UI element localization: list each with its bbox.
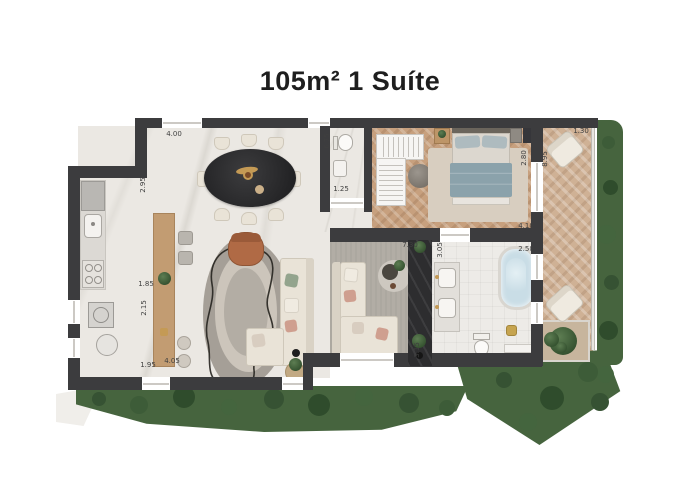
dimension-label: 1.95 bbox=[140, 361, 156, 369]
floor-plan-image: 105m² 1 Suíte bbox=[0, 0, 700, 500]
dimension-label: 6.75 bbox=[323, 133, 331, 149]
dimension-label: 1.85 bbox=[138, 280, 154, 288]
dimension-label: 1.25 bbox=[333, 185, 349, 193]
dimension-label: 7.30 bbox=[402, 241, 418, 249]
dimension-label: 2.95 bbox=[139, 177, 147, 193]
dimension-label: 4.00 bbox=[166, 130, 182, 138]
dimension-label: 2.80 bbox=[520, 150, 528, 166]
dimension-label: 8.95 bbox=[541, 151, 549, 167]
dimension-labels: 4.002.956.751.251.308.952.804.107.303.05… bbox=[0, 0, 700, 500]
dimension-label: 2.15 bbox=[140, 300, 148, 316]
dimension-label: 4.10 bbox=[518, 222, 534, 230]
dimension-label: 3.05 bbox=[436, 242, 444, 258]
dimension-label: 3.15 bbox=[413, 342, 421, 358]
dimension-label: 4.05 bbox=[164, 357, 180, 365]
dimension-label: 1.30 bbox=[573, 127, 589, 135]
dimension-label: 2.50 bbox=[518, 245, 534, 253]
